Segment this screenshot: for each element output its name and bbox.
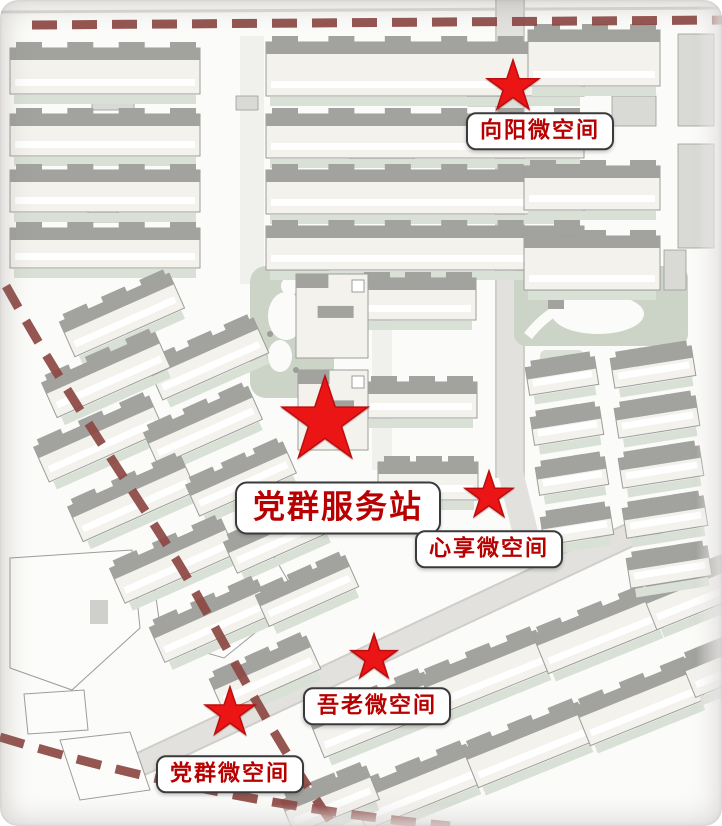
marker-label: 心享微空间 bbox=[415, 530, 563, 568]
marker-label: 吾老微空间 bbox=[303, 687, 451, 725]
star-shape bbox=[465, 471, 513, 516]
star-icon bbox=[460, 467, 518, 525]
star-icon bbox=[273, 369, 377, 473]
marker-label: 党群微空间 bbox=[156, 755, 304, 793]
star-icon bbox=[346, 630, 401, 685]
marker-label: 党群服务站 bbox=[235, 482, 441, 535]
star-shape bbox=[282, 376, 368, 457]
star-icon bbox=[200, 683, 260, 743]
star-shape bbox=[205, 687, 254, 734]
planning-map: 党群服务站 向阳微空间 心享微空间 吾老微空间 党群微空间 bbox=[0, 0, 722, 826]
star-shape bbox=[487, 60, 538, 109]
marker-label: 向阳微空间 bbox=[466, 112, 614, 150]
star-shape bbox=[351, 634, 397, 677]
star-icon bbox=[482, 56, 544, 118]
